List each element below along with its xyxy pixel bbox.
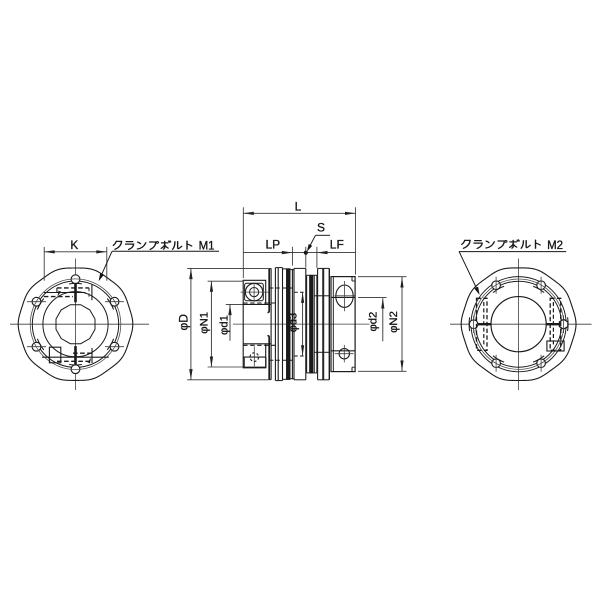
svg-text:M1: M1 — [199, 240, 215, 252]
svg-text:φN2: φN2 — [388, 311, 400, 333]
svg-text:φd1: φd1 — [219, 315, 231, 335]
svg-text:L: L — [295, 200, 302, 214]
svg-text:φd3: φd3 — [287, 313, 299, 332]
svg-text:K: K — [70, 238, 78, 252]
svg-text:M2: M2 — [547, 240, 563, 252]
svg-text:φD: φD — [176, 314, 190, 331]
svg-text:S: S — [317, 220, 325, 234]
svg-text:φN1: φN1 — [198, 312, 210, 334]
svg-text:LF: LF — [330, 238, 344, 252]
svg-text:φd2: φd2 — [368, 312, 380, 332]
svg-text:LP: LP — [265, 238, 280, 252]
